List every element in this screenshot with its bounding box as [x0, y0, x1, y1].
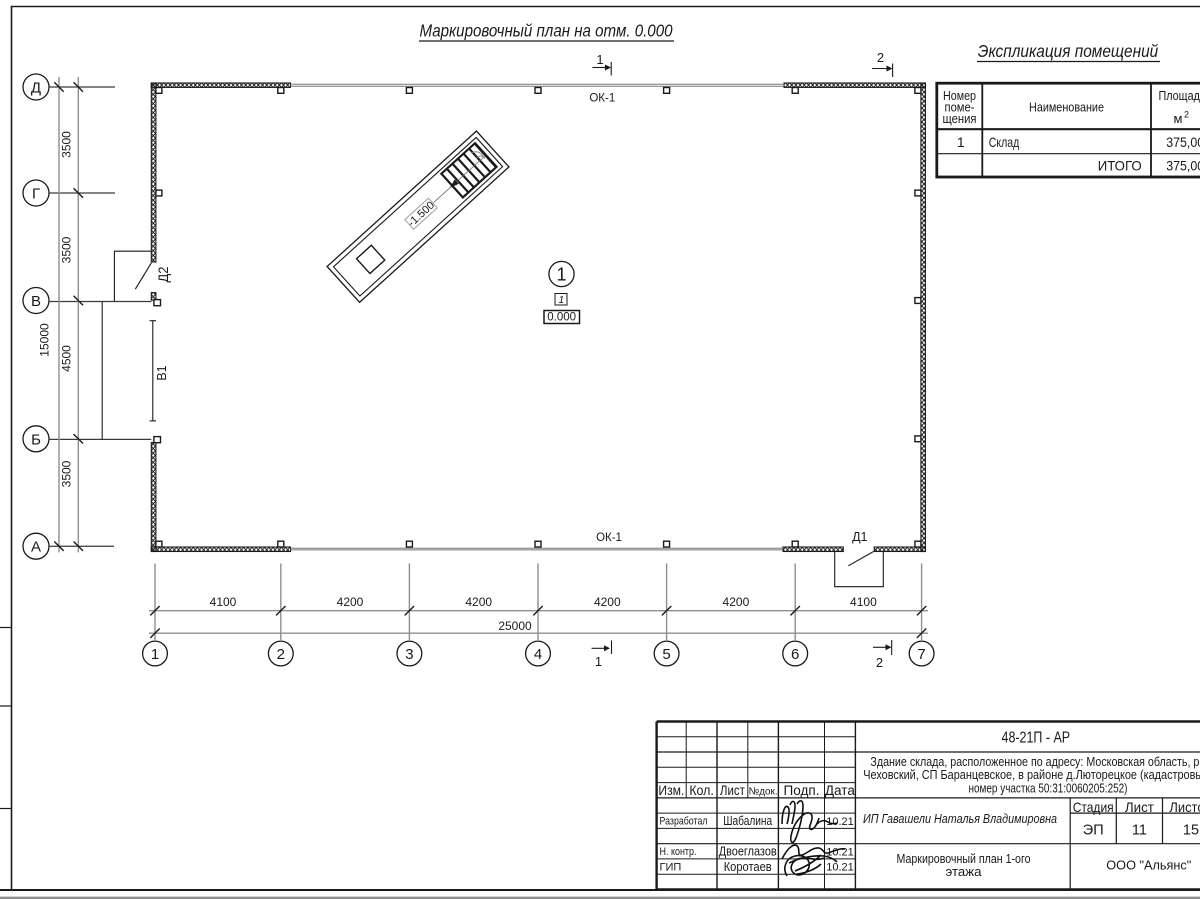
svg-text:15000: 15000 — [38, 323, 52, 357]
svg-text:Маркировочный план на отм. 0.0: Маркировочный план на отм. 0.000 — [420, 21, 673, 41]
svg-text:4200: 4200 — [465, 595, 492, 609]
svg-text:15: 15 — [1183, 822, 1199, 838]
svg-text:Площадь: Площадь — [1159, 88, 1200, 103]
svg-text:0.000: 0.000 — [547, 312, 576, 324]
svg-text:Стадия: Стадия — [1073, 799, 1114, 815]
svg-text:ИП Гавашели Наталья Владимиров: ИП Гавашели Наталья Владимировна — [863, 811, 1057, 826]
svg-text:Шабалина: Шабалина — [723, 814, 772, 828]
svg-text:В1: В1 — [155, 365, 169, 380]
svg-text:4100: 4100 — [850, 595, 877, 609]
svg-text:1: 1 — [558, 294, 564, 306]
svg-text:А: А — [31, 539, 41, 556]
svg-text:1: 1 — [556, 265, 566, 285]
svg-text:Склад: Склад — [989, 134, 1020, 150]
svg-text:2: 2 — [877, 50, 884, 65]
svg-text:Д2: Д2 — [155, 266, 171, 282]
svg-text:Кол.: Кол. — [689, 783, 714, 798]
svg-text:4: 4 — [534, 646, 542, 663]
svg-text:ОК-1: ОК-1 — [589, 93, 615, 105]
svg-text:48-21П - АР: 48-21П - АР — [1002, 730, 1071, 747]
svg-text:Изм.: Изм. — [658, 783, 684, 798]
svg-text:7: 7 — [917, 646, 925, 663]
svg-text:Здание склада, расположенное п: Здание склада, расположенное по адресу: … — [870, 755, 1199, 769]
svg-text:Н. контр.: Н. контр. — [660, 846, 697, 858]
svg-text:2: 2 — [876, 655, 883, 670]
svg-text:номер участка 50:31:0060205:25: номер участка 50:31:0060205:252) — [969, 782, 1128, 796]
svg-text:6: 6 — [791, 646, 799, 663]
svg-text:Дата: Дата — [825, 783, 855, 798]
svg-text:Подп.: Подп. — [784, 783, 820, 798]
svg-text:Д1: Д1 — [852, 530, 867, 544]
svg-text:ГИП: ГИП — [660, 862, 682, 874]
svg-text:Экспликация помещений: Экспликация помещений — [978, 41, 1159, 61]
svg-text:11: 11 — [1132, 822, 1147, 838]
svg-text:4200: 4200 — [337, 595, 364, 609]
svg-text:м: м — [1174, 111, 1183, 126]
svg-text:1: 1 — [596, 52, 603, 67]
svg-text:Двоеглазов: Двоеглазов — [719, 845, 777, 859]
svg-text:Лист: Лист — [720, 783, 745, 798]
svg-text:Наименование: Наименование — [1029, 100, 1104, 115]
svg-text:этажа: этажа — [946, 864, 983, 879]
svg-text:Чеховский, СП Баранцевское, в: Чеховский, СП Баранцевское, в районе д.Л… — [863, 768, 1200, 782]
svg-text:ЭП: ЭП — [1083, 822, 1104, 838]
svg-text:щения: щения — [943, 111, 977, 126]
svg-text:Листов: Листов — [1169, 799, 1200, 815]
svg-text:3500: 3500 — [60, 236, 74, 263]
svg-text:4500: 4500 — [60, 345, 74, 372]
svg-text:1: 1 — [151, 646, 159, 663]
svg-text:10.21: 10.21 — [826, 816, 854, 828]
svg-text:3500: 3500 — [60, 131, 74, 158]
svg-text:375,00: 375,00 — [1166, 158, 1200, 174]
svg-text:Лист: Лист — [1125, 799, 1155, 815]
svg-text:375,00: 375,00 — [1166, 134, 1200, 150]
svg-text:1: 1 — [957, 134, 965, 150]
svg-text:4200: 4200 — [723, 595, 750, 609]
svg-text:Б: Б — [31, 431, 41, 448]
svg-text:Коротаев: Коротаев — [724, 860, 772, 874]
svg-text:4200: 4200 — [594, 595, 621, 609]
svg-text:3: 3 — [405, 646, 413, 663]
svg-text:5: 5 — [662, 646, 670, 663]
svg-text:2: 2 — [277, 646, 285, 663]
svg-text:В: В — [31, 293, 41, 310]
svg-text:4100: 4100 — [210, 595, 237, 609]
svg-text:Г: Г — [32, 186, 40, 203]
svg-text:ИТОГО: ИТОГО — [1098, 158, 1142, 174]
svg-text:Разработал: Разработал — [660, 816, 708, 828]
svg-text:2: 2 — [1184, 110, 1189, 120]
svg-text:3500: 3500 — [60, 460, 74, 487]
svg-text:№док.: №док. — [749, 785, 778, 797]
svg-text:Д: Д — [31, 80, 41, 97]
svg-text:ООО "Альянс": ООО "Альянс" — [1106, 858, 1191, 873]
svg-text:25000: 25000 — [498, 619, 532, 633]
svg-text:1: 1 — [595, 654, 602, 669]
svg-text:ОК-1: ОК-1 — [596, 532, 622, 544]
svg-text:10.21: 10.21 — [826, 862, 854, 874]
